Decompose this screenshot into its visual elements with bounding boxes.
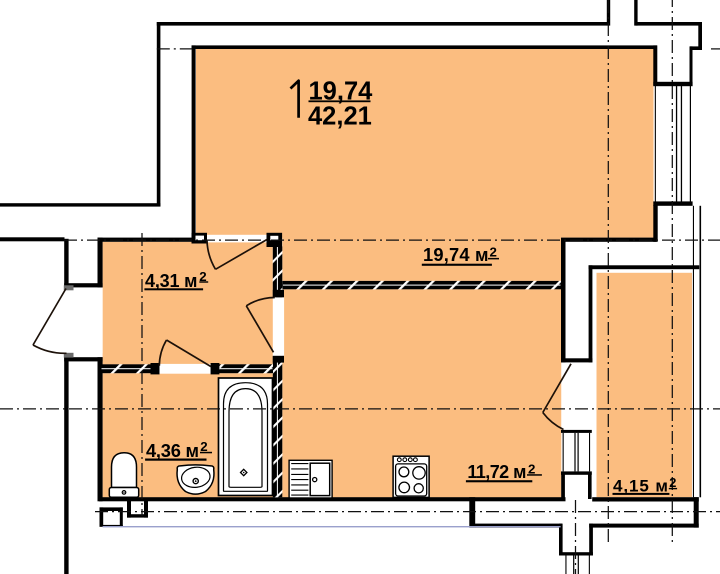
svg-text:11,72 м: 11,72 м bbox=[467, 462, 526, 482]
svg-text:2: 2 bbox=[528, 461, 535, 476]
svg-text:4,15 м: 4,15 м bbox=[613, 476, 668, 495]
svg-text:4,36 м: 4,36 м bbox=[146, 440, 199, 461]
svg-text:19,74 м: 19,74 м bbox=[423, 244, 489, 265]
svg-text:2: 2 bbox=[669, 475, 676, 490]
svg-text:42,21: 42,21 bbox=[308, 102, 372, 130]
svg-text:2: 2 bbox=[490, 245, 497, 260]
svg-text:4,31 м: 4,31 м bbox=[145, 271, 197, 291]
